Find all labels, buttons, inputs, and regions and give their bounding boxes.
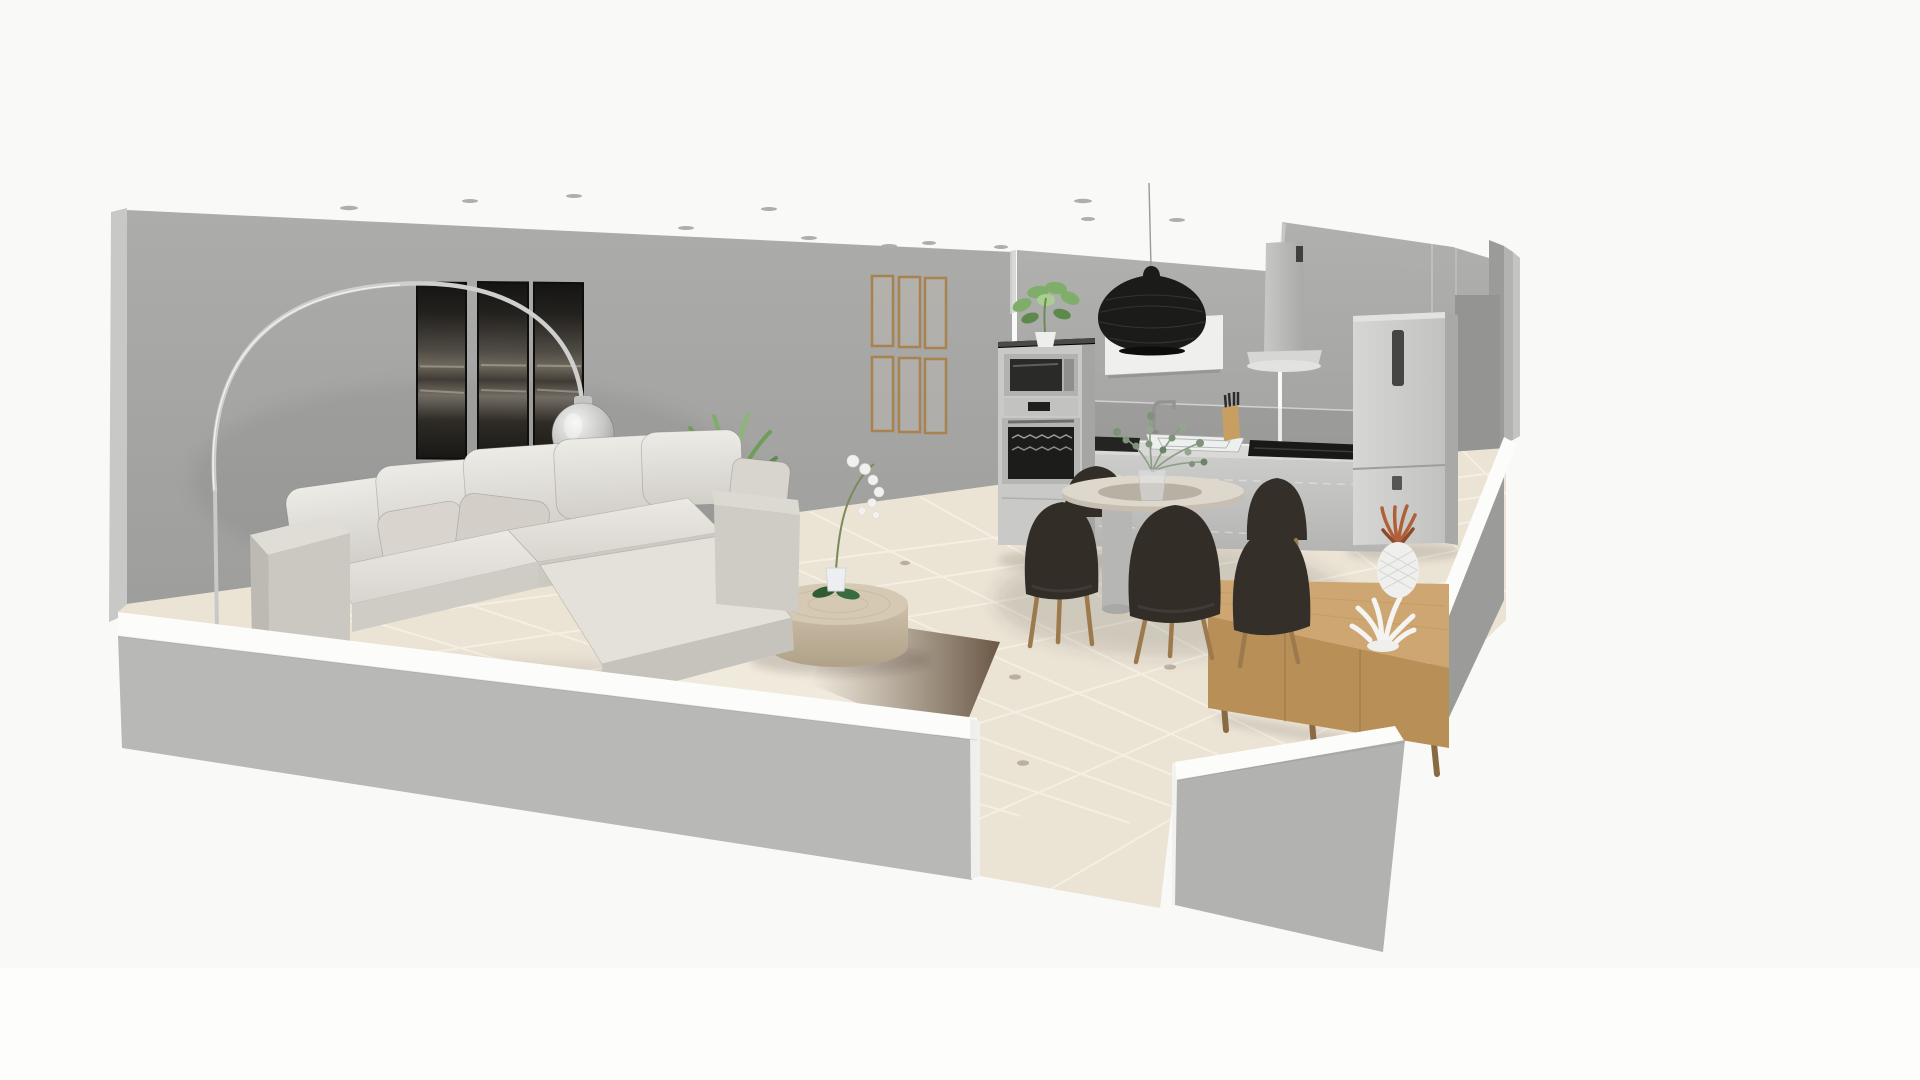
- spotlight-icon: [922, 241, 936, 245]
- pedestal-base: [1102, 604, 1132, 614]
- spotlight-icon: [678, 226, 694, 230]
- wood-frame[interactable]: [925, 359, 946, 433]
- knife-block-body[interactable]: [1222, 405, 1240, 441]
- oven-display: [1028, 402, 1050, 411]
- lamp-reflection: [564, 413, 582, 439]
- spotlight-icon: [1169, 218, 1185, 222]
- spotlight-icon: [462, 199, 478, 203]
- background-lower: [0, 968, 1920, 1080]
- spotlight-icon: [1403, 265, 1421, 269]
- hood-rim: [1247, 360, 1321, 372]
- hood-vent-icon: [1296, 246, 1303, 262]
- sofa-arm-right-front: [714, 505, 800, 612]
- table-pedestal: [1102, 506, 1132, 608]
- orchid-pot: [826, 568, 846, 591]
- glass-vase: [1138, 470, 1166, 500]
- wood-frame[interactable]: [872, 276, 893, 346]
- wood-frame[interactable]: [925, 278, 946, 348]
- microwave-controls: [1064, 359, 1074, 391]
- plant-pot: [1035, 332, 1056, 347]
- freezer-handle-icon: [1392, 476, 1402, 490]
- spotlight-icon: [566, 194, 582, 198]
- wood-frame[interactable]: [899, 358, 920, 432]
- fridge-side: [1445, 312, 1458, 545]
- spotlight-icon: [801, 236, 817, 240]
- spotlight-icon: [761, 207, 777, 211]
- pendant-rim: [1119, 347, 1185, 356]
- right-wall-slab: [1513, 252, 1520, 440]
- doorway-left-endcap: [970, 718, 980, 879]
- left-wall-endcap: [109, 208, 127, 622]
- spotlight-icon: [994, 245, 1008, 249]
- oven-handle: [1008, 421, 1074, 422]
- spotlight-icon: [1074, 199, 1092, 203]
- spotlight-icon: [881, 244, 897, 248]
- fridge-handle[interactable]: [1392, 330, 1404, 386]
- art-panel-1[interactable]: [417, 282, 466, 459]
- spotlight-icon: [340, 206, 358, 210]
- viewport-3d[interactable]: [0, 0, 1920, 1080]
- wood-frame[interactable]: [872, 357, 893, 431]
- wood-frame[interactable]: [899, 277, 920, 347]
- lamp-pole: [215, 492, 217, 632]
- coral-base: [1367, 640, 1399, 652]
- spotlight-icon: [1081, 217, 1095, 221]
- right-wall-slab: [1504, 246, 1513, 443]
